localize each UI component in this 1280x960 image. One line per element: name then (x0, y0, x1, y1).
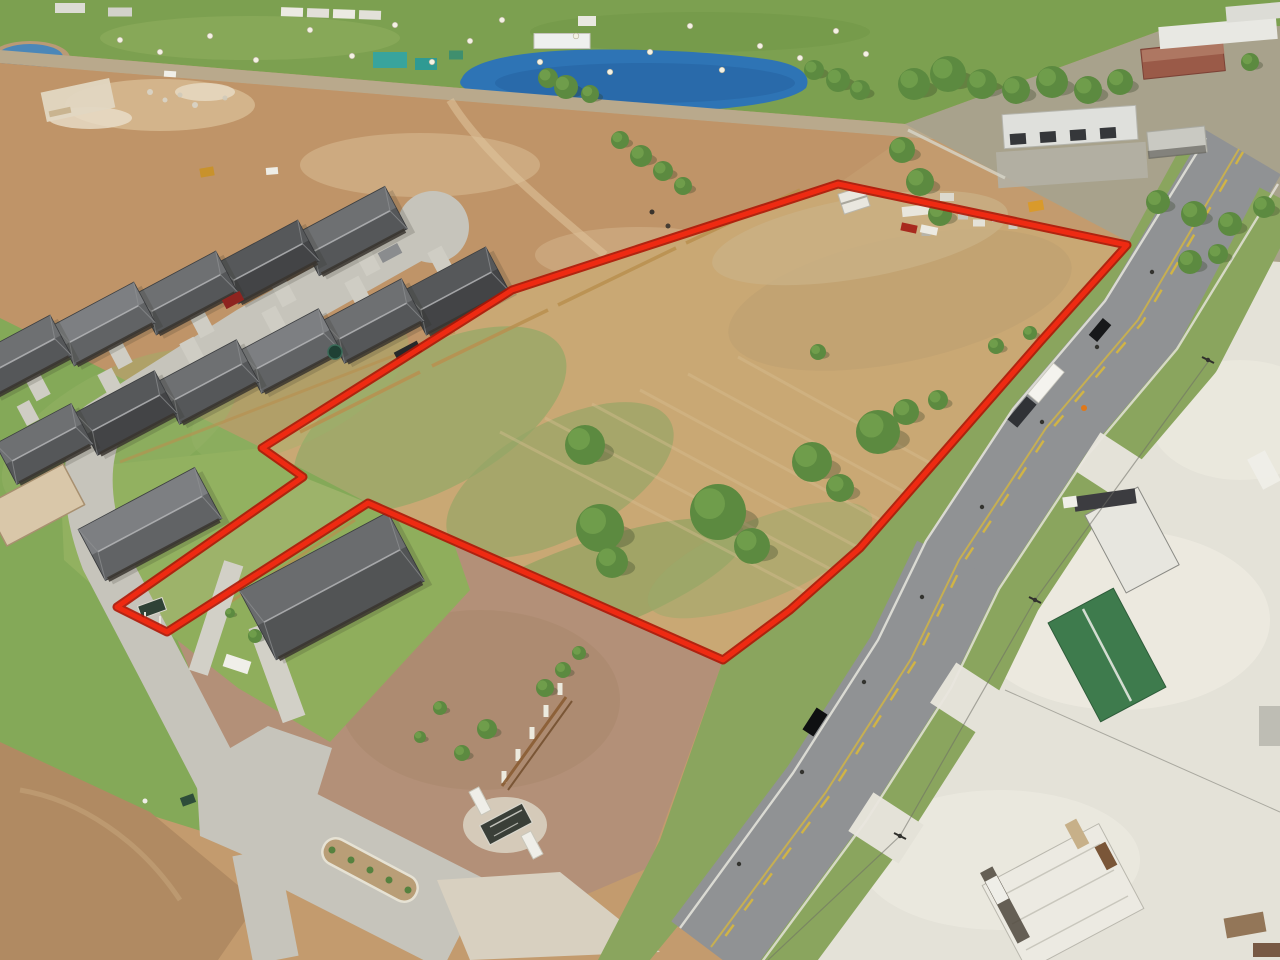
tree-young-4-highlight (537, 680, 547, 690)
debris-3 (178, 93, 183, 98)
tree-young-7-highlight (415, 732, 422, 739)
street-stub (255, 852, 276, 960)
tree-hedge-7-highlight (675, 178, 685, 188)
power-pole-6 (862, 680, 866, 684)
hay-bale-4 (253, 57, 259, 63)
pasture-tone-1 (100, 16, 400, 60)
tree-ind-15-highlight (1242, 54, 1252, 64)
tree-ind-14-highlight (1255, 198, 1267, 210)
hay-bale-15 (687, 23, 693, 29)
tree-ind-1-highlight (900, 70, 918, 88)
hay-bale-10 (499, 17, 505, 23)
tree-ind-9-highlight (908, 170, 923, 185)
tree-ind-12-highlight (1183, 203, 1197, 217)
debris-2 (163, 98, 168, 103)
median-shrub-2 (348, 857, 355, 864)
tree-parcel-13-highlight (1024, 327, 1032, 335)
power-pole-4 (980, 505, 984, 509)
power-pole-8 (737, 862, 741, 866)
container-1 (281, 7, 303, 17)
hay-bale-9 (467, 38, 473, 44)
tree-hedge-1-highlight (540, 70, 551, 81)
hay-bale-14 (647, 49, 653, 55)
farm-building-1 (55, 3, 85, 13)
traffic-cone (1081, 405, 1087, 411)
farm-building-2 (108, 8, 132, 17)
hay-bale-2 (157, 49, 163, 55)
hay-bale-1 (117, 37, 123, 43)
tree-ind-6-highlight (1076, 78, 1091, 93)
tree-young-5-highlight (556, 663, 565, 672)
power-pole-3 (1040, 420, 1044, 424)
hay-bale-12 (573, 33, 579, 39)
tree-hedge-2-highlight (556, 77, 569, 90)
gray-shed-east (1259, 706, 1280, 746)
tree-ind-5-highlight (1038, 68, 1056, 86)
hay-bale-20 (863, 51, 869, 57)
hay-bale-17 (757, 43, 763, 49)
tree-ind-7-highlight (1109, 71, 1123, 85)
hay-bale-13 (607, 69, 613, 75)
debris-4 (192, 102, 198, 108)
tree-parcel-4-highlight (694, 488, 725, 519)
cow-1 (650, 210, 655, 215)
utility-box (143, 799, 148, 804)
power-pole-2 (1095, 345, 1099, 349)
tree-parcel-3-highlight (598, 548, 616, 566)
power-pole-9 (1206, 358, 1210, 362)
aerial-photo-canvas (0, 0, 1280, 960)
median-shrub-4 (386, 877, 393, 884)
hay-bale-11 (537, 59, 543, 65)
tree-young-2-highlight (455, 746, 464, 755)
tree-parcel-8-highlight (859, 413, 883, 437)
tree-young-6-highlight (573, 647, 581, 655)
semi-cab-parked (1062, 496, 1077, 509)
scrap-pile-2 (1253, 943, 1280, 957)
power-pole-7 (800, 770, 804, 774)
tree-ind-11-highlight (1148, 192, 1161, 205)
hay-bale-19 (833, 28, 839, 34)
tree-parcel-6-highlight (795, 445, 817, 467)
warehouse-bay-3 (1070, 129, 1087, 141)
hay-bale-8 (429, 59, 435, 65)
fence-post-4 (544, 705, 549, 717)
tree-ind-3-highlight (969, 71, 986, 88)
green-hut (449, 51, 463, 60)
tree-parcel-9-highlight (895, 401, 909, 415)
tree-young-3-highlight (434, 702, 442, 710)
median-shrub-5 (405, 887, 412, 894)
fence-post-3 (530, 727, 535, 739)
tree-young-1-highlight (479, 721, 490, 732)
tree-parcel-10-highlight (930, 392, 941, 403)
warehouse-bay-4 (1100, 127, 1117, 139)
crate-3 (973, 220, 985, 227)
debris-1 (147, 89, 153, 95)
tree-ind-4-highlight (1004, 78, 1019, 93)
fence-post-5 (558, 683, 563, 695)
power-pole-11 (898, 834, 902, 838)
tree-verge-1-highlight (1180, 252, 1193, 265)
tree-pond-1-highlight (806, 62, 817, 73)
median-shrub-1 (329, 847, 336, 854)
hay-bale-16 (719, 67, 725, 73)
tree-parcel-1-highlight (568, 428, 590, 450)
trampoline (328, 345, 342, 359)
tree-parcel-7-highlight (828, 476, 843, 491)
tree-pond-3-highlight (852, 82, 863, 93)
hay-bale-6 (349, 53, 355, 59)
work-truck (266, 167, 279, 175)
warehouse-bay-1 (1010, 133, 1027, 145)
tree-ind-8-highlight (891, 139, 905, 153)
aerial-photo-land-parcel (0, 0, 1280, 960)
road-truck (164, 71, 176, 78)
median-shrub-3 (367, 867, 374, 874)
tree-ind-2-highlight (933, 59, 953, 79)
tree-parcel-2-highlight (580, 508, 606, 534)
tree-yard-2-highlight (226, 609, 232, 615)
tree-parcel-5-highlight (737, 531, 757, 551)
power-pole-10 (1033, 598, 1037, 602)
crate-1 (940, 193, 954, 201)
cow-2 (666, 224, 671, 229)
hay-bale-7 (392, 22, 398, 28)
tree-verge-2-highlight (1210, 246, 1221, 257)
tree-hedge-6-highlight (655, 163, 666, 174)
tree-hedge-3-highlight (582, 86, 592, 96)
container-3 (333, 9, 355, 19)
warehouse-bay-2 (1040, 131, 1057, 143)
teal-building-1 (373, 52, 407, 68)
power-pole-5 (920, 595, 924, 599)
debris-5 (223, 96, 228, 101)
hay-bale-5 (307, 27, 313, 33)
hay-bale-18 (797, 55, 803, 61)
hay-bale-3 (207, 33, 213, 39)
white-warehouse-pasture (534, 34, 590, 49)
power-pole-1 (1150, 270, 1154, 274)
tree-hedge-4-highlight (612, 132, 622, 142)
tree-yard-1-highlight (249, 630, 257, 638)
tree-ind-13-highlight (1220, 214, 1233, 227)
white-shed-pasture (578, 16, 596, 26)
tree-pond-2-highlight (828, 70, 841, 83)
container-2 (307, 8, 329, 18)
container-4 (359, 10, 381, 20)
tree-parcel-12-highlight (989, 339, 998, 348)
tree-parcel-11-highlight (811, 345, 820, 354)
tree-hedge-5-highlight (632, 147, 644, 159)
